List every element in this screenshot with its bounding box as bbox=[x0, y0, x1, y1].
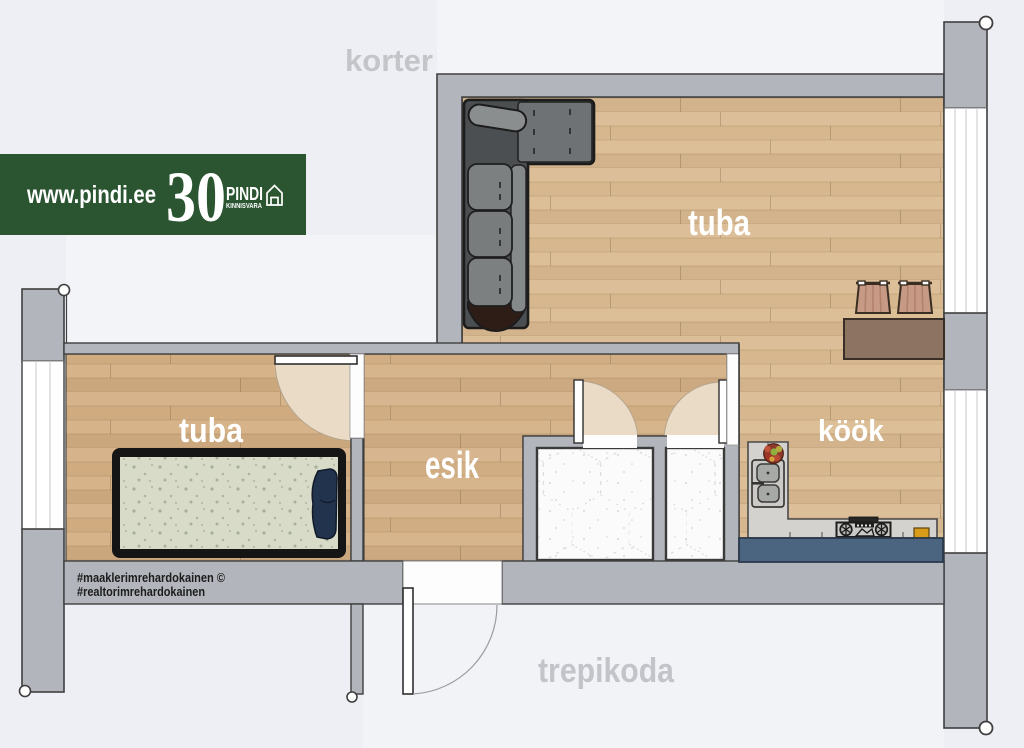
svg-text:köök: köök bbox=[818, 413, 885, 448]
svg-text:esik: esik bbox=[425, 445, 480, 487]
svg-text:KINNISVARA: KINNISVARA bbox=[226, 201, 262, 210]
svg-text:#realtorimrehardokainen: #realtorimrehardokainen bbox=[77, 584, 205, 599]
svg-text:trepikoda: trepikoda bbox=[538, 652, 675, 690]
svg-text:tuba: tuba bbox=[179, 412, 244, 450]
svg-text:tuba: tuba bbox=[688, 202, 751, 243]
svg-text:korter: korter bbox=[345, 43, 433, 78]
svg-text:30: 30 bbox=[166, 157, 226, 237]
svg-text:www.pindi.ee: www.pindi.ee bbox=[26, 181, 156, 209]
svg-text:#maaklerimrehardokainen ©: #maaklerimrehardokainen © bbox=[77, 570, 225, 585]
